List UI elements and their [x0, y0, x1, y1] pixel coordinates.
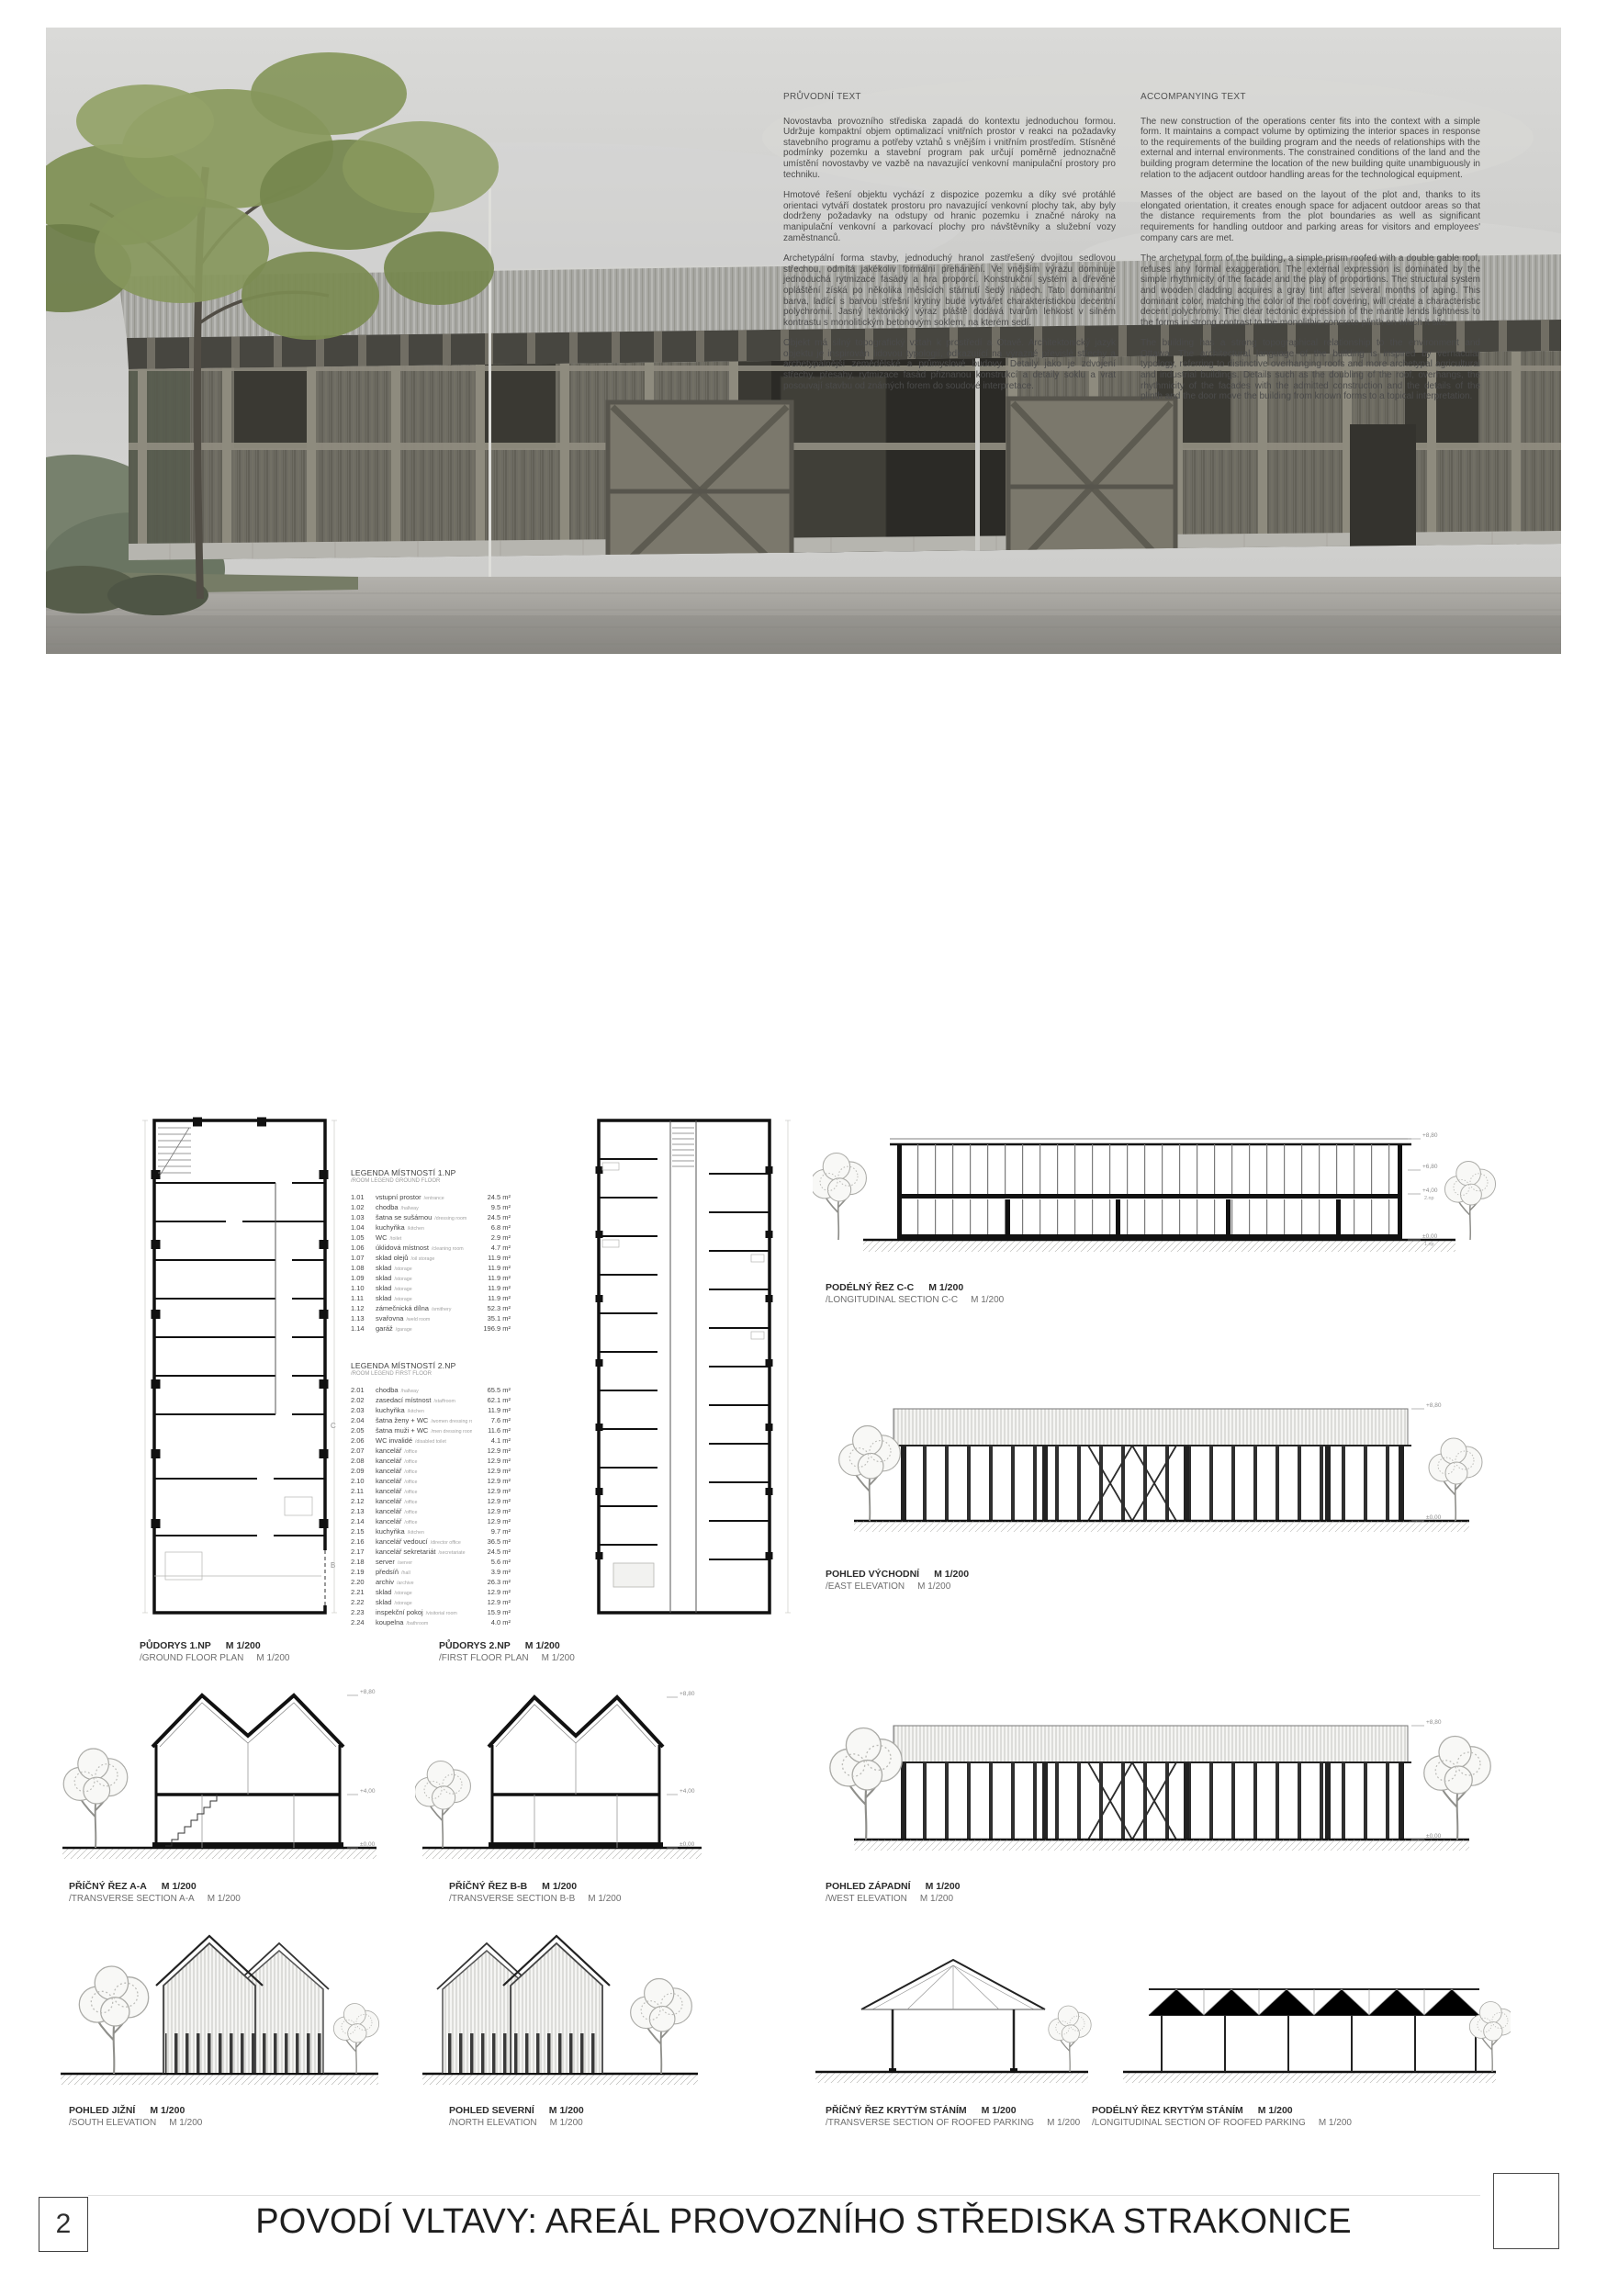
room-area: 7.6 m²: [472, 1416, 511, 1426]
room-name: kancelář: [376, 1487, 401, 1495]
room-name: kuchyňka: [376, 1406, 405, 1414]
caption-scale-en: M 1/200: [256, 1653, 289, 1663]
first-floor-plan-drawing: [562, 1111, 806, 1626]
svg-text:+6,80: +6,80: [1422, 1164, 1438, 1170]
caption-title-cs: PŮDORYS 2.NP: [439, 1640, 511, 1651]
room-number: 2.11: [351, 1487, 376, 1497]
room-name-en: /storage: [395, 1591, 412, 1596]
room-name-en: /cleaning room: [432, 1246, 464, 1252]
room-area: 12.9 m²: [472, 1487, 511, 1497]
legend-row: 1.09 sklad/storage 11.9 m²: [351, 1274, 511, 1284]
paragraph: The new construction of the operations c…: [1141, 117, 1480, 181]
room-area: 4.1 m²: [472, 1436, 511, 1446]
room-area: 12.9 m²: [472, 1517, 511, 1527]
room-name: chodba: [376, 1386, 399, 1394]
room-number: 1.12: [351, 1304, 376, 1314]
caption-scale: M 1/200: [542, 1881, 577, 1892]
svg-text:+8,80: +8,80: [360, 1689, 376, 1695]
room-area: 35.1 m²: [472, 1314, 511, 1324]
room-area: 12.9 m²: [472, 1497, 511, 1507]
legend-row: 2.05 šatna muži + WC/men dressing room +…: [351, 1426, 511, 1436]
room-area: 12.9 m²: [472, 1507, 511, 1517]
room-number: 1.14: [351, 1324, 376, 1334]
room-number: 2.05: [351, 1426, 376, 1436]
room-area: 12.9 m²: [472, 1467, 511, 1477]
room-name: vstupní prostor: [376, 1193, 421, 1201]
room-number: 1.03: [351, 1213, 376, 1223]
room-number: 2.10: [351, 1477, 376, 1487]
caption-scale: M 1/200: [934, 1569, 969, 1580]
caption-title-en: /LONGITUDINAL SECTION OF ROOFED PARKING: [1092, 2118, 1306, 2128]
legend-subtitle: /ROOM LEGEND FIRST FLOOR: [351, 1371, 511, 1377]
room-number: 2.13: [351, 1507, 376, 1517]
caption-scale-en: M 1/200: [208, 1894, 241, 1904]
room-name-en: /women dressing room + toilet: [431, 1419, 472, 1424]
czech-paragraphs: Novostavba provozního střediska zapadá d…: [783, 117, 1116, 392]
room-area: 11.9 m²: [472, 1406, 511, 1416]
room-number: 2.04: [351, 1416, 376, 1426]
room-name: sklad: [376, 1274, 392, 1282]
caption-scale-en: M 1/200: [1047, 2118, 1080, 2128]
room-name-en: /storage: [395, 1266, 412, 1272]
room-number: 2.23: [351, 1608, 376, 1618]
legend-row: 2.14 kancelář/office 12.9 m²: [351, 1517, 511, 1527]
room-area: 12.9 m²: [472, 1457, 511, 1467]
legend-row: 1.11 sklad/storage 11.9 m²: [351, 1294, 511, 1304]
caption-parking-transverse: PŘÍČNÝ ŘEZ KRYTÝM STÁNÍMM 1/200 /TRANSVE…: [826, 2105, 1080, 2128]
legend-row: 2.23 inspekční pokoj/visitorial room 15.…: [351, 1608, 511, 1618]
roofed-parking-longitudinal-section-drawing: [1116, 1919, 1511, 2106]
room-name-en: /storage: [395, 1601, 412, 1606]
caption-title-en: /TRANSVERSE SECTION A-A: [69, 1894, 195, 1904]
room-number: 2.06: [351, 1436, 376, 1446]
caption-scale: M 1/200: [162, 1881, 197, 1892]
room-name-en: /director office: [431, 1540, 461, 1546]
tree-symbol: [1429, 1438, 1482, 1521]
caption-title-en: /EAST ELEVATION: [826, 1581, 905, 1592]
room-name: šatna se sušárnou: [376, 1213, 432, 1221]
room-number: 2.08: [351, 1457, 376, 1467]
room-name-en: /office: [404, 1510, 417, 1515]
caption-scale: M 1/200: [150, 2105, 185, 2116]
legend-row: 2.15 kuchyňka/kitchen 9.7 m²: [351, 1527, 511, 1537]
tree-symbol: [813, 1154, 866, 1241]
caption-scale-en: M 1/200: [588, 1894, 621, 1904]
stamp-box: [1493, 2173, 1559, 2249]
svg-text:±0,00: ±0,00: [680, 1841, 695, 1848]
tree-symbol: [415, 1761, 470, 1849]
caption-scale-en: M 1/200: [542, 1653, 575, 1663]
footer-divider: [88, 2195, 1480, 2196]
room-name-en: /toilet: [390, 1236, 402, 1242]
room-name: sklad: [376, 1284, 392, 1292]
north-elevation-drawing: [415, 1894, 709, 2105]
legend-row: 2.10 kancelář/office 12.9 m²: [351, 1477, 511, 1487]
room-number: 2.09: [351, 1467, 376, 1477]
caption-scale-en: M 1/200: [169, 2118, 202, 2128]
legend-row: 1.01 vstupní prostor/entrance 24.5 m²: [351, 1193, 511, 1203]
caption-west: POHLED ZÁPADNÍM 1/200 /WEST ELEVATIONM 1…: [826, 1881, 961, 1904]
room-number: 2.17: [351, 1548, 376, 1558]
room-legend-ground-floor: LEGENDA MÍSTNOSTÍ 1.NP /ROOM LEGEND GROU…: [351, 1168, 511, 1334]
room-number: 1.04: [351, 1223, 376, 1233]
room-area: 11.9 m²: [472, 1254, 511, 1264]
legend-row: 1.04 kuchyňka/kitchen 6.8 m²: [351, 1223, 511, 1233]
caption-south: POHLED JIŽNÍM 1/200 /SOUTH ELEVATIONM 1/…: [69, 2105, 202, 2128]
room-area: 9.5 m²: [472, 1203, 511, 1213]
caption-scale-en: M 1/200: [971, 1295, 1004, 1305]
svg-text:±0,00: ±0,00: [1426, 1833, 1442, 1840]
room-number: 1.02: [351, 1203, 376, 1213]
room-name-en: /hallway: [401, 1206, 419, 1211]
room-name-en: /smithery: [432, 1307, 452, 1312]
caption-title-cs: PŘÍČNÝ ŘEZ B-B: [449, 1881, 527, 1892]
room-area: 11.9 m²: [472, 1294, 511, 1304]
legend-title: LEGENDA MÍSTNOSTÍ 2.NP: [351, 1361, 511, 1370]
room-name-en: /visitorial room: [426, 1611, 457, 1616]
south-elevation-drawing: [53, 1894, 388, 2105]
caption-title-cs: PŮDORYS 1.NP: [140, 1640, 211, 1651]
legend-row: 2.07 kancelář/office 12.9 m²: [351, 1446, 511, 1457]
room-name: sklad: [376, 1294, 392, 1302]
room-name-en: /office: [404, 1469, 417, 1475]
room-area: 11.9 m²: [472, 1284, 511, 1294]
room-name-en: /kitchen: [408, 1409, 424, 1414]
legend-row: 2.22 sklad/storage 12.9 m²: [351, 1598, 511, 1608]
caption-title-en: /FIRST FLOOR PLAN: [439, 1653, 529, 1663]
legend-row: 2.08 kancelář/office 12.9 m²: [351, 1457, 511, 1467]
room-name: svařovna: [376, 1314, 403, 1322]
room-number: 2.21: [351, 1588, 376, 1598]
room-legend-first-floor: LEGENDA MÍSTNOSTÍ 2.NP /ROOM LEGEND FIRS…: [351, 1361, 511, 1628]
room-number: 1.08: [351, 1264, 376, 1274]
tree-symbol: [1049, 2006, 1091, 2072]
legend-row: 1.14 garáž/garage 196.9 m²: [351, 1324, 511, 1334]
room-name-en: /office: [404, 1520, 417, 1525]
caption-east: POHLED VÝCHODNÍM 1/200 /EAST ELEVATIONM …: [826, 1569, 969, 1592]
room-area: 24.5 m²: [472, 1213, 511, 1223]
legend-row: 2.09 kancelář/office 12.9 m²: [351, 1467, 511, 1477]
east-elevation-drawing: +8,80 ±0,00: [813, 1367, 1506, 1559]
room-area: 2.9 m²: [472, 1233, 511, 1244]
door-opening: [1350, 424, 1416, 555]
room-name-en: /secretariate: [438, 1550, 465, 1556]
room-number: 2.24: [351, 1618, 376, 1628]
paragraph: Novostavba provozního střediska zapadá d…: [783, 117, 1116, 181]
room-area: 12.9 m²: [472, 1598, 511, 1608]
room-name-en: /archive: [397, 1581, 414, 1586]
tree-symbol: [631, 1979, 692, 2075]
caption-scale-en: M 1/200: [1319, 2118, 1352, 2128]
caption-title-cs: PODÉLNÝ ŘEZ C-C: [826, 1282, 914, 1293]
caption-title-en: /LONGITUDINAL SECTION C-C: [826, 1295, 958, 1305]
room-number: 1.10: [351, 1284, 376, 1294]
room-number: 2.07: [351, 1446, 376, 1457]
room-name-en: /kitchen: [408, 1530, 424, 1536]
paragraph: Objekt má silný topografický vztah k pro…: [783, 338, 1116, 391]
caption-title-en: /NORTH ELEVATION: [449, 2118, 537, 2128]
transverse-section-aa-drawing: +8,80 +4,00 ±0,00: [53, 1664, 388, 1880]
legend-title: LEGENDA MÍSTNOSTÍ 1.NP: [351, 1168, 511, 1177]
room-number: 1.06: [351, 1244, 376, 1254]
room-name: předsíň: [376, 1568, 399, 1576]
room-name-en: /entrance: [424, 1196, 444, 1201]
room-name: sklad olejů: [376, 1254, 408, 1262]
caption-title-cs: POHLED JIŽNÍ: [69, 2105, 135, 2116]
room-area: 6.8 m²: [472, 1223, 511, 1233]
caption-title-cs: PODÉLNÝ ŘEZ KRYTÝM STÁNÍM: [1092, 2105, 1243, 2116]
caption-scale: M 1/200: [226, 1640, 261, 1651]
level-marks: [1408, 1139, 1421, 1240]
caption-title-cs: POHLED VÝCHODNÍ: [826, 1569, 919, 1580]
legend-subtitle: /ROOM LEGEND GROUND FLOOR: [351, 1178, 511, 1184]
room-area: 196.9 m²: [472, 1324, 511, 1334]
legend-row: 2.06 WC invalidé/disabled toilet 4.1 m²: [351, 1436, 511, 1446]
room-area: 62.1 m²: [472, 1396, 511, 1406]
text-column-english: ACCOMPANYING TEXT The new construction o…: [1141, 92, 1480, 412]
room-name-en: /staffroom: [433, 1399, 455, 1404]
room-number: 2.12: [351, 1497, 376, 1507]
legend-rows: 2.01 chodba/hallway 65.5 m² 2.02 zasedac…: [351, 1386, 511, 1628]
hero-render: PRŮVODNÍ TEXT Novostavba provozního stře…: [46, 28, 1561, 654]
room-name-en: /bathroom: [406, 1621, 428, 1626]
svg-text:+8,80: +8,80: [1426, 1719, 1442, 1726]
legend-row: 2.19 předsíň/hall 3.9 m²: [351, 1568, 511, 1578]
transverse-section-bb-drawing: +8,80 +4,00 ±0,00: [415, 1664, 709, 1880]
room-name-en: /office: [404, 1480, 417, 1485]
ground-floor-plan-drawing: [138, 1111, 342, 1626]
room-name: kancelář: [376, 1477, 401, 1485]
caption-title-cs: PŘÍČNÝ ŘEZ KRYTÝM STÁNÍM: [826, 2105, 967, 2116]
room-area: 24.5 m²: [472, 1193, 511, 1203]
room-name: zámečnická dílna: [376, 1304, 429, 1312]
svg-text:±0,00: ±0,00: [1426, 1514, 1442, 1521]
legend-row: 2.01 chodba/hallway 65.5 m²: [351, 1386, 511, 1396]
room-name: kuchyňka: [376, 1527, 405, 1536]
legend-row: 2.12 kancelář/office 12.9 m²: [351, 1497, 511, 1507]
caption-north: POHLED SEVERNÍM 1/200 /NORTH ELEVATIONM …: [449, 2105, 584, 2128]
paragraph: The archetypal form of the building, a s…: [1141, 253, 1480, 328]
room-number: 1.05: [351, 1233, 376, 1244]
room-name-en: /office: [404, 1490, 417, 1495]
legend-row: 2.17 kancelář sekretariát/secretariate 2…: [351, 1548, 511, 1558]
caption-scale: M 1/200: [982, 2105, 1017, 2116]
room-name: kancelář: [376, 1457, 401, 1465]
room-name: sklad: [376, 1264, 392, 1272]
legend-row: 1.10 sklad/storage 11.9 m²: [351, 1284, 511, 1294]
room-name: kuchyňka: [376, 1223, 405, 1232]
caption-title-en: /WEST ELEVATION: [826, 1894, 907, 1904]
caption-plan1: PŮDORYS 1.NPM 1/200 /GROUND FLOOR PLANM …: [140, 1640, 290, 1663]
room-name-en: /men dressing room + toilet: [431, 1429, 472, 1435]
caption-scale: M 1/200: [549, 2105, 584, 2116]
room-area: 4.7 m²: [472, 1244, 511, 1254]
room-name-en: /weld room: [406, 1317, 430, 1322]
caption-cc: PODÉLNÝ ŘEZ C-CM 1/200 /LONGITUDINAL SEC…: [826, 1282, 1004, 1305]
text-column-czech: PRŮVODNÍ TEXT Novostavba provozního stře…: [783, 92, 1116, 401]
room-number: 2.14: [351, 1517, 376, 1527]
legend-rows: 1.01 vstupní prostor/entrance 24.5 m² 1.…: [351, 1193, 511, 1334]
room-name-en: /hallway: [401, 1389, 419, 1394]
room-name: garáž: [376, 1324, 393, 1333]
svg-text:+8,80: +8,80: [1422, 1132, 1438, 1139]
legend-row: 2.11 kancelář/office 12.9 m²: [351, 1487, 511, 1497]
room-area: 24.5 m²: [472, 1548, 511, 1558]
room-name-en: /storage: [395, 1297, 412, 1302]
svg-text:+8,80: +8,80: [1426, 1402, 1442, 1409]
svg-text:2.np: 2.np: [1424, 1196, 1434, 1201]
room-name: šatna muži + WC: [376, 1426, 428, 1435]
room-name: kancelář: [376, 1517, 401, 1525]
room-number: 1.09: [351, 1274, 376, 1284]
room-area: 11.9 m²: [472, 1264, 511, 1274]
room-number: 2.18: [351, 1558, 376, 1568]
room-number: 2.16: [351, 1537, 376, 1548]
room-area: 12.9 m²: [472, 1446, 511, 1457]
legend-row: 2.20 archiv/archive 26.3 m²: [351, 1578, 511, 1588]
room-area: 4.0 m²: [472, 1618, 511, 1628]
room-name: šatna ženy + WC: [376, 1416, 428, 1424]
room-name-en: /storage: [395, 1277, 412, 1282]
svg-text:1.np: 1.np: [1424, 1242, 1434, 1247]
room-area: 52.3 m²: [472, 1304, 511, 1314]
caption-scale-en: M 1/200: [917, 1581, 950, 1592]
room-name: kancelář: [376, 1467, 401, 1475]
room-name: WC: [376, 1233, 388, 1242]
legend-row: 1.06 úklidová místnost/cleaning room 4.7…: [351, 1244, 511, 1254]
room-name-en: /office: [404, 1459, 417, 1465]
roofed-parking-transverse-section-drawing: [808, 1919, 1097, 2106]
caption-title-cs: POHLED ZÁPADNÍ: [826, 1881, 911, 1892]
room-name: koupelna: [376, 1618, 403, 1626]
tree-symbol: [333, 2004, 378, 2075]
room-name: WC invalidé: [376, 1436, 412, 1445]
room-name: archiv: [376, 1578, 394, 1586]
caption-bb: PŘÍČNÝ ŘEZ B-BM 1/200 /TRANSVERSE SECTIO…: [449, 1881, 621, 1904]
room-area: 9.7 m²: [472, 1527, 511, 1537]
board-title: POVODÍ VLTAVY: AREÁL PROVOZNÍHO STŘEDISK…: [0, 2202, 1607, 2242]
legend-row: 2.02 zasedací místnost/staffroom 62.1 m²: [351, 1396, 511, 1406]
presentation-board: PRŮVODNÍ TEXT Novostavba provozního stře…: [0, 0, 1607, 2296]
caption-scale: M 1/200: [928, 1282, 963, 1293]
legend-row: 2.13 kancelář/office 12.9 m²: [351, 1507, 511, 1517]
room-name: kancelář: [376, 1446, 401, 1455]
svg-text:+4,00: +4,00: [680, 1788, 695, 1795]
room-number: 2.03: [351, 1406, 376, 1416]
room-name: úklidová místnost: [376, 1244, 429, 1252]
room-name: chodba: [376, 1203, 399, 1211]
paragraph: Masses of the object are based on the la…: [1141, 190, 1480, 243]
longitudinal-section-cc-drawing: +8,80 +6,80 +4,00 2.np ±0,00 1.np: [813, 1102, 1506, 1277]
svg-text:+8,80: +8,80: [680, 1691, 695, 1697]
room-number: 1.01: [351, 1193, 376, 1203]
legend-row: 2.18 server/server 5.6 m²: [351, 1558, 511, 1568]
room-area: 12.9 m²: [472, 1588, 511, 1598]
room-name: zasedací místnost: [376, 1396, 431, 1404]
tree-symbol: [1444, 1162, 1495, 1241]
svg-text:±0,00: ±0,00: [360, 1841, 376, 1848]
room-number: 2.20: [351, 1578, 376, 1588]
legend-row: 2.04 šatna ženy + WC/women dressing room…: [351, 1416, 511, 1426]
room-number: 1.11: [351, 1294, 376, 1304]
room-number: 1.07: [351, 1254, 376, 1264]
room-name-en: /dressing room: [434, 1216, 466, 1221]
room-name-en: /office: [404, 1449, 417, 1455]
room-name-en: /hall: [401, 1570, 410, 1576]
room-number: 2.19: [351, 1568, 376, 1578]
tree-symbol: [63, 1749, 128, 1848]
room-number: 2.01: [351, 1386, 376, 1396]
room-area: 5.6 m²: [472, 1558, 511, 1568]
svg-text:±0,00: ±0,00: [1422, 1233, 1438, 1240]
caption-parking-longitudinal: PODÉLNÝ ŘEZ KRYTÝM STÁNÍMM 1/200 /LONGIT…: [1092, 2105, 1352, 2128]
room-number: 2.22: [351, 1598, 376, 1608]
legend-row: 2.03 kuchyňka/kitchen 11.9 m²: [351, 1406, 511, 1416]
caption-title-en: /TRANSVERSE SECTION OF ROOFED PARKING: [826, 2118, 1034, 2128]
room-area: 65.5 m²: [472, 1386, 511, 1396]
room-name-en: /garage: [396, 1327, 412, 1333]
caption-scale: M 1/200: [1258, 2105, 1293, 2116]
room-name: server: [376, 1558, 395, 1566]
legend-row: 1.03 šatna se sušárnou/dressing room 24.…: [351, 1213, 511, 1223]
room-name-en: /server: [398, 1560, 412, 1566]
heading-czech: PRŮVODNÍ TEXT: [783, 92, 1116, 103]
room-area: 11.9 m²: [472, 1274, 511, 1284]
legend-row: 2.24 koupelna/bathroom 4.0 m²: [351, 1618, 511, 1628]
tree-symbol: [830, 1728, 902, 1840]
room-number: 2.15: [351, 1527, 376, 1537]
room-name: sklad: [376, 1588, 392, 1596]
room-name-en: /kitchen: [408, 1226, 424, 1232]
flagpole: [489, 188, 491, 592]
svg-text:+4,00: +4,00: [1422, 1187, 1438, 1194]
room-name: kancelář sekretariát: [376, 1548, 435, 1556]
room-name-en: /office: [404, 1500, 417, 1505]
caption-title-cs: POHLED SEVERNÍ: [449, 2105, 534, 2116]
room-name-en: /disabled toilet: [415, 1439, 446, 1445]
room-number: 1.13: [351, 1314, 376, 1324]
caption-scale-en: M 1/200: [920, 1894, 953, 1904]
legend-row: 1.02 chodba/hallway 9.5 m²: [351, 1203, 511, 1213]
caption-title-en: /GROUND FLOOR PLAN: [140, 1653, 243, 1663]
tree-symbol: [79, 1966, 148, 2074]
room-name: sklad: [376, 1598, 392, 1606]
paragraph: Archetypální forma stavby, jednoduchý hr…: [783, 253, 1116, 328]
room-number: 2.02: [351, 1396, 376, 1406]
room-name: kancelář vedoucí: [376, 1537, 428, 1546]
caption-title-en: /TRANSVERSE SECTION B-B: [449, 1894, 575, 1904]
caption-scale: M 1/200: [525, 1640, 560, 1651]
room-area: 36.5 m²: [472, 1537, 511, 1548]
legend-row: 2.21 sklad/storage 12.9 m²: [351, 1588, 511, 1598]
english-paragraphs: The new construction of the operations c…: [1141, 117, 1480, 402]
room-area: 26.3 m²: [472, 1578, 511, 1588]
room-name: kancelář: [376, 1497, 401, 1505]
legend-row: 2.16 kancelář vedoucí/director office 36…: [351, 1537, 511, 1548]
heading-english: ACCOMPANYING TEXT: [1141, 92, 1480, 103]
room-area: 3.9 m²: [472, 1568, 511, 1578]
room-area: 11.6 m²: [472, 1426, 511, 1436]
stair: [165, 1795, 217, 1846]
legend-row: 1.12 zámečnická dílna/smithery 52.3 m²: [351, 1304, 511, 1314]
tree-symbol: [839, 1426, 901, 1522]
caption-scale: M 1/200: [926, 1881, 961, 1892]
caption-plan2: PŮDORYS 2.NPM 1/200 /FIRST FLOOR PLANM 1…: [439, 1640, 575, 1663]
room-name-en: /storage: [395, 1287, 412, 1292]
caption-title-en: /SOUTH ELEVATION: [69, 2118, 156, 2128]
legend-row: 1.08 sklad/storage 11.9 m²: [351, 1264, 511, 1274]
west-elevation-drawing: +8,80 ±0,00: [813, 1649, 1506, 1878]
